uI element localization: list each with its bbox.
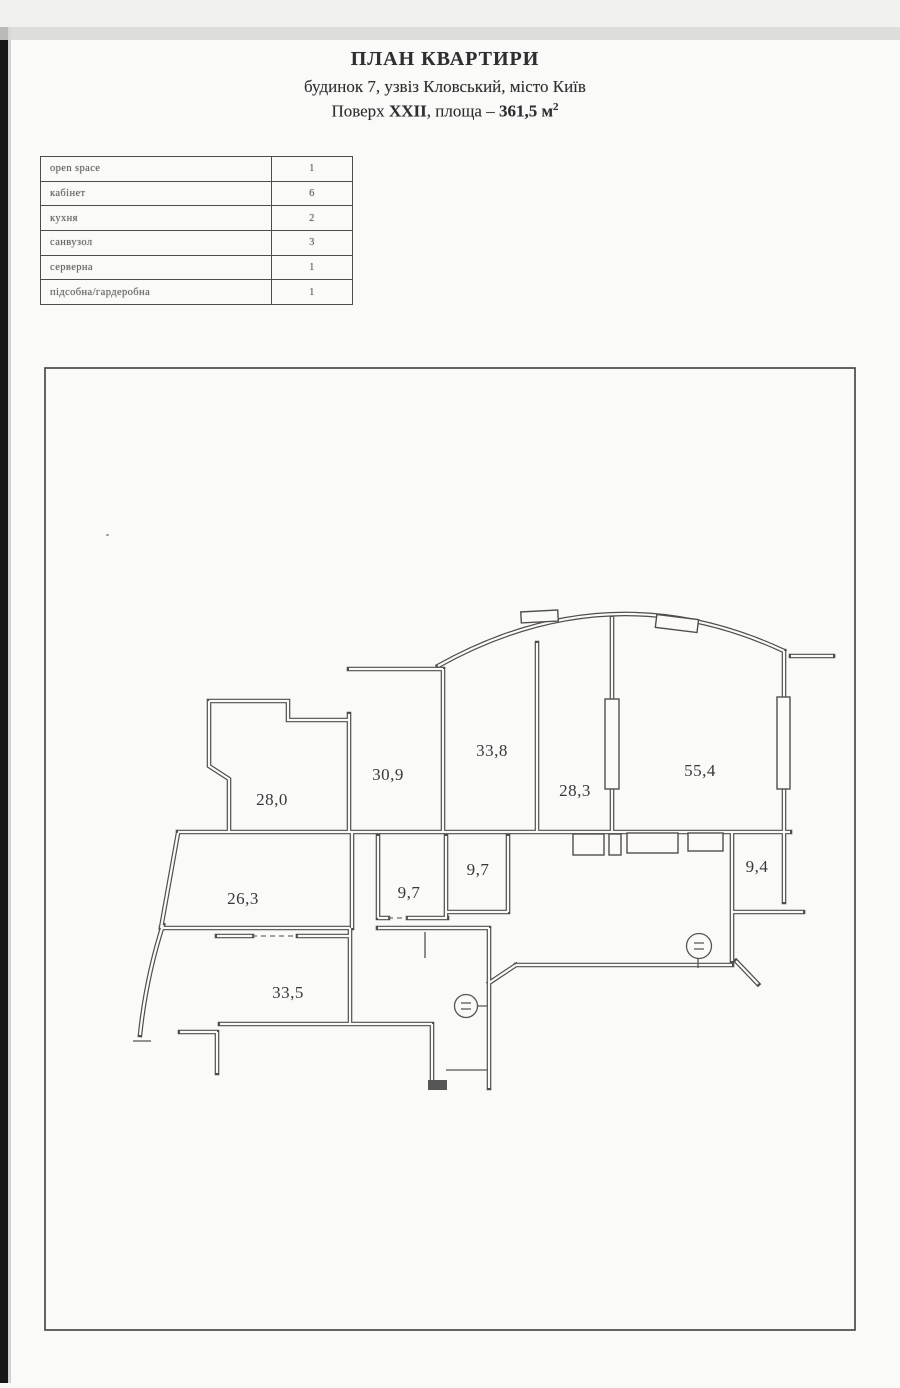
wall-foot bbox=[428, 1080, 447, 1090]
room-area-label: 28,3 bbox=[559, 781, 591, 800]
wc-symbol bbox=[455, 995, 478, 1018]
room-area-label: 9,7 bbox=[467, 860, 490, 879]
apartment-walls-inner bbox=[140, 614, 833, 1088]
wc-symbol bbox=[687, 934, 712, 959]
shaft-box bbox=[609, 834, 621, 855]
wall-pillar bbox=[605, 699, 619, 789]
room-area-label: 26,3 bbox=[227, 889, 259, 908]
room-area-label: 9,7 bbox=[398, 883, 421, 902]
floor-plan-svg: 28,0 30,9 33,8 28,3 55,4 26,3 9,7 9,7 9,… bbox=[0, 0, 900, 1383]
room-area-label: 33,8 bbox=[476, 741, 508, 760]
room-area-label: 55,4 bbox=[684, 761, 716, 780]
shaft-box bbox=[688, 833, 723, 851]
shaft-box bbox=[627, 833, 678, 853]
apartment-walls-outer bbox=[140, 614, 833, 1088]
room-area-label: 28,0 bbox=[256, 790, 288, 809]
shaft-box bbox=[573, 834, 604, 855]
arc-window bbox=[521, 610, 559, 623]
floor-plan: 28,0 30,9 33,8 28,3 55,4 26,3 9,7 9,7 9,… bbox=[0, 0, 900, 1383]
room-area-label: 33,5 bbox=[272, 983, 304, 1002]
room-area-label: 9,4 bbox=[746, 857, 769, 876]
wall-pillar bbox=[777, 697, 790, 789]
arc-window bbox=[655, 614, 698, 632]
room-area-label: 30,9 bbox=[372, 765, 404, 784]
